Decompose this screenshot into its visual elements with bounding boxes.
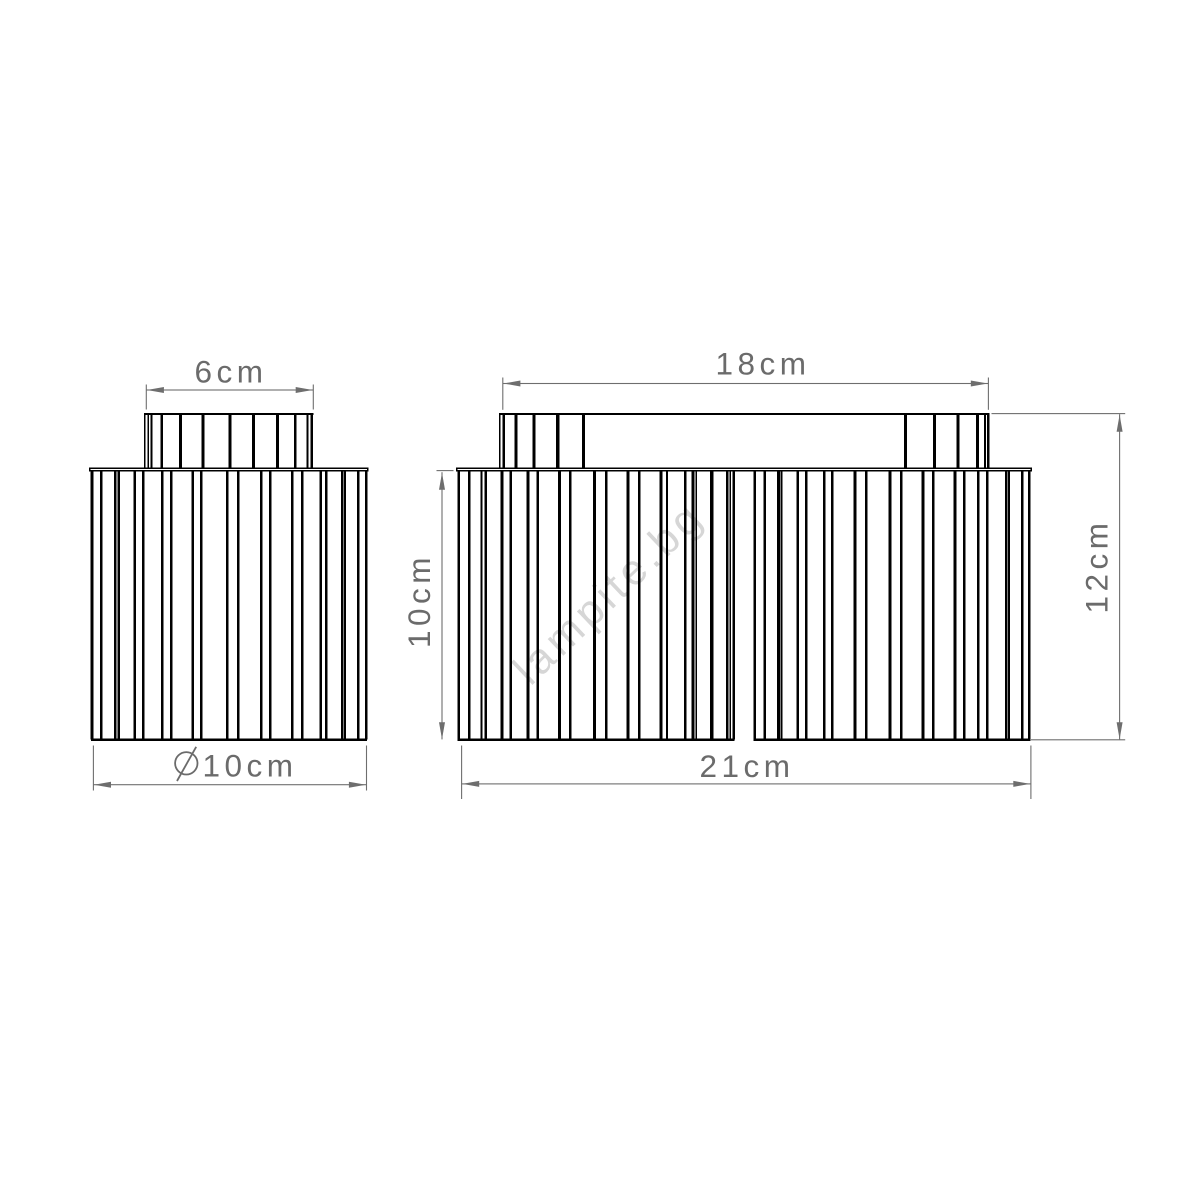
svg-text:21cm: 21cm bbox=[699, 748, 794, 784]
svg-text:10cm: 10cm bbox=[202, 747, 297, 783]
svg-text:12cm: 12cm bbox=[1079, 518, 1115, 613]
svg-text:10cm: 10cm bbox=[401, 553, 437, 648]
svg-text:18cm: 18cm bbox=[715, 345, 810, 381]
svg-text:6cm: 6cm bbox=[194, 353, 267, 389]
